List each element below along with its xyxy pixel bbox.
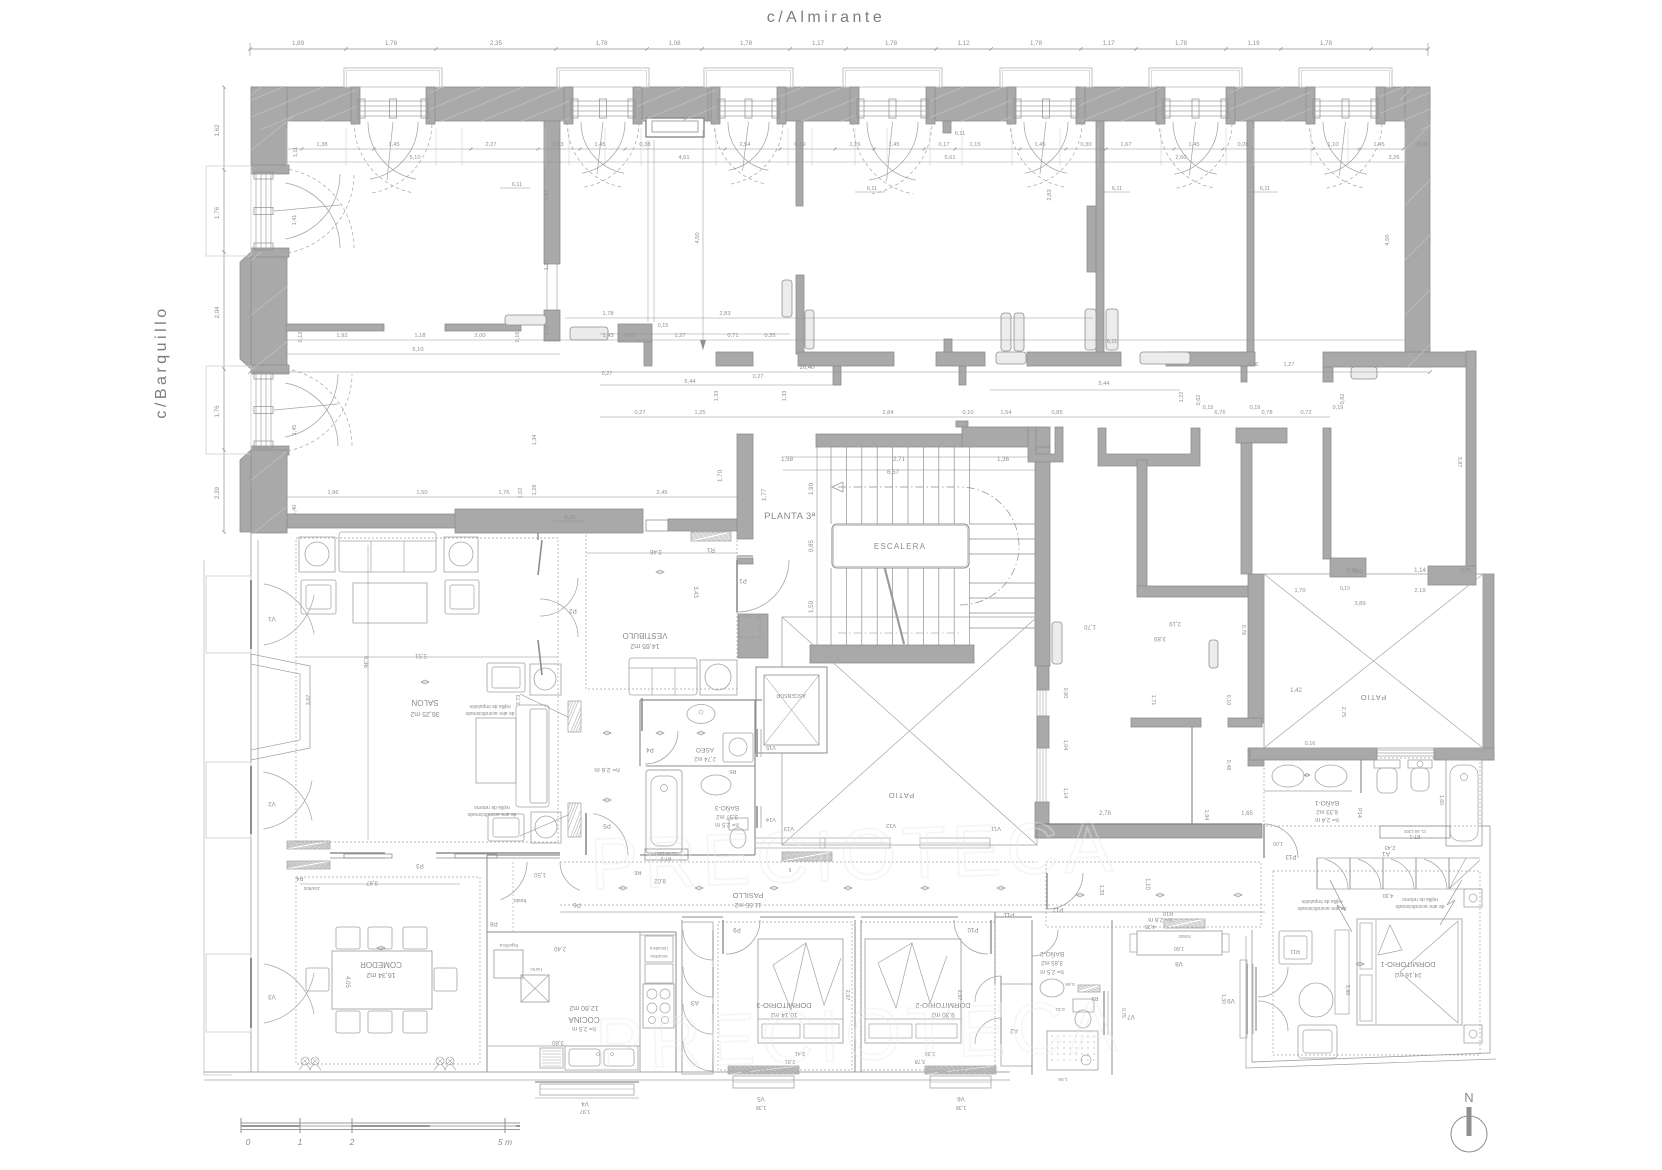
- svg-text:1,78: 1,78: [602, 311, 613, 317]
- svg-text:1,97: 1,97: [580, 1108, 591, 1114]
- svg-text:h= 2,5 m: h= 2,5 m: [1040, 968, 1064, 974]
- svg-text:P10: P10: [967, 926, 979, 933]
- svg-text:1,04: 1,04: [1062, 740, 1068, 751]
- svg-text:A1: A1: [1382, 850, 1390, 857]
- svg-text:3,65 m2: 3,65 m2: [1041, 959, 1063, 965]
- svg-text:2,40: 2,40: [554, 945, 566, 951]
- svg-text:0,60: 0,60: [1062, 688, 1068, 699]
- svg-text:104/800: 104/800: [303, 886, 320, 891]
- svg-text:frigorífica: frigorífica: [499, 943, 518, 948]
- svg-text:1,14: 1,14: [1414, 568, 1426, 574]
- svg-text:6,76: 6,76: [1214, 410, 1225, 416]
- svg-text:0,10: 0,10: [1225, 695, 1231, 706]
- svg-text:1,15: 1,15: [969, 142, 980, 148]
- svg-text:1,76: 1,76: [214, 405, 221, 418]
- svg-text:R5: R5: [729, 768, 736, 774]
- svg-text:1,45: 1,45: [1188, 142, 1199, 148]
- svg-text:V2: V2: [268, 800, 276, 807]
- svg-text:1,89: 1,89: [292, 40, 305, 47]
- svg-text:1,17: 1,17: [1102, 40, 1115, 47]
- svg-text:P11: P11: [1003, 911, 1014, 918]
- svg-text:rejilla de impulsión: rejilla de impulsión: [1301, 898, 1342, 904]
- svg-text:1,50: 1,50: [808, 600, 815, 613]
- svg-text:1,30: 1,30: [1220, 994, 1226, 1004]
- svg-text:0,76: 0,76: [1240, 625, 1246, 636]
- svg-text:1,50: 1,50: [416, 490, 427, 496]
- svg-text:2,60: 2,60: [1175, 155, 1186, 161]
- svg-text:P12: P12: [1052, 906, 1064, 913]
- svg-text:20,40: 20,40: [799, 365, 815, 371]
- svg-text:0,75: 0,75: [1461, 568, 1472, 574]
- svg-text:PATIO: PATIO: [888, 791, 914, 800]
- svg-text:1,70: 1,70: [1294, 588, 1305, 594]
- svg-text:P2: P2: [569, 607, 577, 614]
- svg-text:h= 2,6 m: h= 2,6 m: [594, 766, 619, 773]
- svg-text:1,60: 1,60: [1174, 945, 1184, 951]
- svg-text:16,34 m2: 16,34 m2: [366, 971, 395, 978]
- svg-text:0,27: 0,27: [634, 410, 645, 416]
- svg-text:3,87: 3,87: [366, 879, 378, 885]
- svg-text:h= 2,5 m: h= 2,5 m: [572, 1025, 596, 1031]
- svg-text:1,27: 1,27: [544, 260, 550, 271]
- svg-text:1,12: 1,12: [957, 40, 970, 47]
- svg-text:6,36: 6,36: [362, 656, 368, 668]
- svg-text:24,16 m2: 24,16 m2: [1394, 971, 1421, 978]
- svg-text:2,19: 2,19: [1169, 620, 1181, 626]
- svg-text:1,50: 1,50: [534, 871, 546, 877]
- svg-text:3,60: 3,60: [552, 1039, 564, 1045]
- svg-text:V7: V7: [1127, 1013, 1135, 1020]
- svg-text:3,26: 3,26: [1388, 155, 1399, 161]
- svg-text:1,45: 1,45: [888, 142, 899, 148]
- svg-text:1,70: 1,70: [717, 469, 724, 482]
- svg-text:1,67: 1,67: [1120, 142, 1131, 148]
- svg-text:5,44: 5,44: [1098, 381, 1110, 387]
- svg-text:6,33 m2: 6,33 m2: [1316, 808, 1338, 814]
- svg-text:P9: P9: [733, 926, 741, 933]
- svg-text:6,11: 6,11: [1260, 186, 1270, 192]
- svg-text:2,19: 2,19: [1414, 588, 1425, 594]
- svg-text:1,25: 1,25: [694, 410, 705, 416]
- svg-text:1,78: 1,78: [1030, 40, 1043, 47]
- svg-text:1,77: 1,77: [761, 488, 768, 501]
- svg-text:de aire acondicionado: de aire acondicionado: [467, 811, 516, 817]
- svg-text:V6: V6: [957, 1095, 965, 1102]
- svg-text:1,54: 1,54: [1000, 410, 1012, 416]
- svg-text:1,08: 1,08: [668, 40, 681, 47]
- svg-text:1,65: 1,65: [1241, 811, 1253, 817]
- svg-text:0,10: 0,10: [1340, 586, 1350, 592]
- svg-text:1,42: 1,42: [1290, 688, 1302, 694]
- svg-text:3,67: 3,67: [306, 695, 312, 706]
- svg-text:5,44: 5,44: [684, 379, 696, 385]
- svg-text:P6: P6: [573, 901, 581, 908]
- svg-text:de aire acondicionado: de aire acondicionado: [1395, 903, 1444, 909]
- svg-text:BAÑO-1: BAÑO-1: [1315, 799, 1340, 808]
- svg-text:1,90: 1,90: [808, 482, 815, 495]
- svg-text:1,45: 1,45: [388, 142, 399, 148]
- svg-text:l.lavadora: l.lavadora: [649, 946, 668, 951]
- svg-text:V3: V3: [268, 993, 276, 1000]
- svg-text:1,14: 1,14: [1062, 788, 1068, 799]
- svg-text:0,10: 0,10: [962, 410, 973, 416]
- svg-text:P3: P3: [416, 862, 424, 869]
- svg-text:1,22: 1,22: [1179, 392, 1185, 403]
- svg-text:0,12: 0,12: [298, 332, 304, 343]
- svg-text:horno: horno: [530, 967, 542, 972]
- svg-text:de aire acondicionado: de aire acondicionado: [465, 710, 514, 716]
- svg-text:2,45: 2,45: [656, 490, 667, 496]
- svg-text:1,92: 1,92: [336, 333, 347, 339]
- svg-text:c/Barquillo: c/Barquillo: [153, 305, 170, 418]
- svg-text:rejilla de impulsión: rejilla de impulsión: [469, 703, 510, 709]
- svg-text:rejilla de retorno: rejilla de retorno: [474, 804, 510, 810]
- svg-text:R11: R11: [1290, 948, 1300, 954]
- svg-text:BAÑO-3: BAÑO-3: [715, 804, 740, 813]
- svg-text:ASCENSOR: ASCENSOR: [776, 692, 805, 698]
- svg-text:3,90: 3,90: [1344, 985, 1350, 996]
- svg-text:SALON: SALON: [411, 698, 438, 707]
- svg-text:1,94: 1,94: [1203, 810, 1209, 821]
- svg-text:V4: V4: [581, 1100, 589, 1107]
- svg-text:4,30: 4,30: [1383, 892, 1394, 898]
- svg-text:0,38: 0,38: [639, 142, 650, 148]
- svg-text:BAÑO-2: BAÑO-2: [1040, 950, 1065, 959]
- svg-text:0,15: 0,15: [658, 323, 669, 329]
- svg-text:0,78: 0,78: [1261, 410, 1272, 416]
- svg-text:0,56: 0,56: [1065, 981, 1075, 987]
- svg-text:1,76: 1,76: [498, 490, 509, 496]
- svg-text:2,39: 2,39: [214, 486, 221, 499]
- svg-text:0,16: 0,16: [515, 332, 521, 343]
- svg-text:0,27: 0,27: [753, 374, 764, 380]
- svg-text:6,25: 6,25: [565, 515, 576, 521]
- svg-text:4,25: 4,25: [1145, 923, 1156, 929]
- svg-text:5,51: 5,51: [415, 652, 427, 658]
- svg-text:0,48: 0,48: [1225, 760, 1231, 771]
- svg-text:1,78: 1,78: [1175, 40, 1188, 47]
- svg-text:PATIO: PATIO: [1360, 693, 1386, 702]
- svg-text:3,89: 3,89: [1354, 601, 1365, 607]
- svg-text:V9: V9: [1227, 997, 1235, 1004]
- svg-text:VESTIBULO: VESTIBULO: [623, 631, 668, 640]
- svg-text:1,78: 1,78: [385, 40, 398, 47]
- svg-text:1,38: 1,38: [316, 142, 327, 148]
- svg-text:1,10: 1,10: [1144, 878, 1150, 890]
- svg-text:2,04: 2,04: [214, 306, 221, 319]
- svg-text:c/Almirante: c/Almirante: [767, 9, 886, 26]
- svg-text:1,96: 1,96: [327, 490, 338, 496]
- svg-text:0,85: 0,85: [808, 539, 815, 552]
- svg-text:6,11: 6,11: [867, 186, 877, 192]
- svg-text:1,27: 1,27: [1283, 362, 1294, 368]
- svg-text:1,33: 1,33: [714, 391, 720, 402]
- svg-text:1,33: 1,33: [782, 391, 788, 402]
- svg-text:1,60: 1,60: [1438, 795, 1444, 805]
- svg-text:0,19: 0,19: [1250, 405, 1261, 411]
- svg-text:0,55: 0,55: [625, 333, 636, 339]
- svg-text:1,41: 1,41: [292, 215, 298, 226]
- svg-text:1,36: 1,36: [756, 1104, 767, 1110]
- svg-text:P1: P1: [739, 577, 747, 584]
- svg-text:1,45: 1,45: [1034, 142, 1045, 148]
- svg-text:3,87: 3,87: [1456, 457, 1462, 468]
- svg-text:6,11: 6,11: [955, 131, 965, 137]
- svg-text:V5: V5: [757, 1095, 765, 1102]
- svg-text:V15: V15: [766, 744, 776, 750]
- svg-text:2,75: 2,75: [1340, 707, 1346, 718]
- svg-text:0,62: 0,62: [1196, 395, 1202, 406]
- svg-text:2,54: 2,54: [739, 142, 751, 148]
- svg-text:1,11: 1,11: [293, 147, 299, 157]
- svg-text:1,40: 1,40: [292, 505, 298, 516]
- svg-text:fondo: fondo: [514, 897, 527, 903]
- svg-text:1,78: 1,78: [595, 40, 608, 47]
- svg-text:secadora: secadora: [650, 954, 668, 959]
- svg-text:0,16: 0,16: [1248, 362, 1259, 368]
- svg-text:5 m: 5 m: [498, 1137, 512, 1147]
- svg-text:0,17: 0,17: [938, 142, 949, 148]
- svg-text:0,72: 0,72: [1300, 410, 1311, 416]
- svg-text:1,76: 1,76: [214, 206, 221, 219]
- svg-text:1,45: 1,45: [1373, 142, 1384, 148]
- svg-text:1,45: 1,45: [594, 142, 605, 148]
- svg-text:2,83: 2,83: [1047, 189, 1053, 200]
- svg-text:3,43: 3,43: [692, 586, 698, 598]
- svg-text:2,27: 2,27: [485, 142, 496, 148]
- svg-text:1,06: 1,06: [1058, 1076, 1068, 1082]
- svg-text:rejilla de retorno: rejilla de retorno: [1402, 896, 1438, 902]
- svg-text:P13: P13: [1285, 853, 1297, 860]
- svg-text:0,30: 0,30: [1080, 142, 1091, 148]
- svg-text:1,00: 1,00: [1273, 840, 1283, 846]
- svg-text:0,19: 0,19: [1333, 405, 1344, 411]
- svg-text:6,11: 6,11: [1112, 186, 1122, 192]
- svg-text:R4: R4: [296, 875, 303, 881]
- svg-text:1,70: 1,70: [1084, 623, 1096, 629]
- svg-text:0,65: 0,65: [1417, 142, 1428, 148]
- svg-text:5,61: 5,61: [944, 155, 955, 161]
- svg-text:R1: R1: [707, 546, 715, 552]
- svg-text:V8: V8: [1175, 960, 1183, 967]
- svg-text:4,61: 4,61: [678, 155, 689, 161]
- svg-text:COMEDOR: COMEDOR: [360, 960, 402, 969]
- svg-text:6,11: 6,11: [512, 182, 522, 188]
- svg-text:V1: V1: [268, 615, 276, 622]
- svg-text:h= 2,4 m: h= 2,4 m: [1315, 816, 1339, 822]
- svg-text:3,89: 3,89: [1154, 635, 1166, 641]
- svg-text:3,73: 3,73: [516, 695, 522, 706]
- svg-text:14,65 m2: 14,65 m2: [630, 642, 659, 649]
- svg-text:0,82: 0,82: [1340, 394, 1346, 405]
- svg-text:2,74 m2: 2,74 m2: [694, 755, 716, 761]
- svg-text:1: 1: [298, 1137, 303, 1147]
- svg-text:5,10: 5,10: [409, 155, 420, 161]
- svg-text:1,10: 1,10: [1327, 142, 1338, 148]
- svg-text:R10: R10: [1163, 910, 1173, 916]
- svg-text:0,85: 0,85: [1051, 410, 1062, 416]
- svg-text:P4: P4: [646, 746, 654, 753]
- svg-text:1,18: 1,18: [414, 333, 425, 339]
- svg-text:0: 0: [246, 1137, 251, 1147]
- svg-text:1,45: 1,45: [292, 425, 298, 436]
- svg-text:0,58: 0,58: [1353, 569, 1363, 575]
- svg-text:1,62: 1,62: [214, 124, 221, 137]
- svg-text:36,25 m2: 36,25 m2: [410, 710, 439, 717]
- svg-text:P8: P8: [490, 920, 498, 927]
- svg-text:4,05: 4,05: [344, 976, 350, 988]
- svg-text:ASEO: ASEO: [696, 746, 714, 753]
- svg-text:PLANTA 3ª: PLANTA 3ª: [764, 511, 816, 522]
- svg-text:0,28: 0,28: [1237, 142, 1248, 148]
- svg-text:2: 2: [349, 1137, 355, 1147]
- svg-text:1,16: 1,16: [849, 142, 860, 148]
- svg-text:11.55 m2: 11.55 m2: [734, 901, 761, 908]
- svg-text:0,16: 0,16: [1305, 741, 1316, 747]
- svg-text:1,34: 1,34: [532, 435, 538, 446]
- svg-text:4,50: 4,50: [695, 232, 701, 243]
- svg-text:P14: P14: [1356, 808, 1362, 818]
- svg-text:1,17: 1,17: [812, 40, 825, 47]
- svg-text:2,84: 2,84: [882, 410, 894, 416]
- svg-text:1,19: 1,19: [1247, 40, 1260, 47]
- svg-text:1,71: 1,71: [1150, 695, 1156, 706]
- svg-text:2,00: 2,00: [474, 333, 485, 339]
- svg-text:1,67: 1,67: [544, 190, 550, 201]
- svg-text:0,15: 0,15: [1203, 405, 1214, 411]
- svg-text:1,78: 1,78: [885, 40, 898, 47]
- svg-text:7s/600: 7s/600: [1178, 934, 1191, 939]
- svg-text:1,78: 1,78: [1320, 40, 1333, 47]
- svg-text:3,57 m2: 3,57 m2: [716, 813, 738, 819]
- svg-text:1,36: 1,36: [956, 1104, 967, 1110]
- svg-text:1,28: 1,28: [532, 485, 538, 496]
- svg-text:0,19: 0,19: [794, 142, 805, 148]
- svg-text:2,43: 2,43: [1385, 844, 1396, 850]
- svg-text:0,13: 0,13: [552, 142, 563, 148]
- svg-text:1,78: 1,78: [740, 40, 753, 47]
- svg-text:ESCALERA: ESCALERA: [874, 542, 926, 551]
- svg-text:4,50: 4,50: [1385, 234, 1391, 245]
- svg-text:CL 60-1200: CL 60-1200: [1403, 829, 1425, 834]
- svg-text:2,35: 2,35: [490, 40, 503, 47]
- svg-text:3,46: 3,46: [650, 548, 662, 554]
- svg-text:5,10: 5,10: [412, 347, 423, 353]
- svg-text:N: N: [1464, 1090, 1473, 1105]
- svg-text:2,83: 2,83: [719, 311, 730, 317]
- svg-text:1,58: 1,58: [544, 325, 550, 336]
